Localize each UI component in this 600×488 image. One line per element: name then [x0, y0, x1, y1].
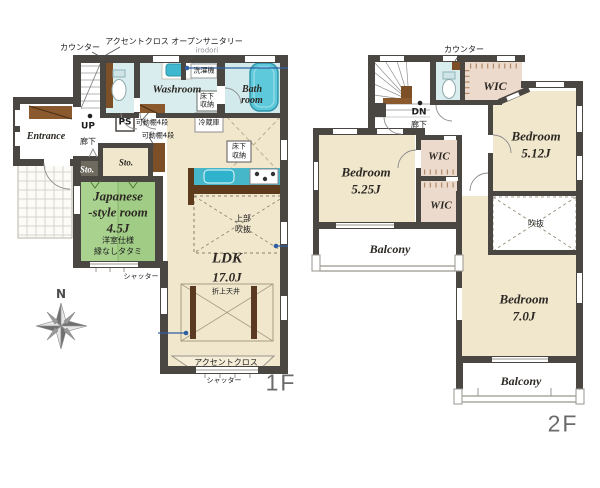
sto-large-label: Sto.	[119, 159, 133, 168]
washing-machine-label: 洗濯機	[194, 68, 215, 75]
ldk-label-2: 17.0J	[212, 271, 241, 284]
sto-small-label: Sto.	[80, 166, 94, 175]
wic-low-label: WIC	[430, 201, 451, 212]
underfloor-kitchen-1: 床下	[232, 144, 246, 151]
floor1-label: 1F	[266, 372, 297, 395]
floorplan-canvas: カウンター アクセントクロス オープンサニタリー irodori 洗濯機 床下 …	[0, 0, 600, 488]
balcony-south-label: Balcony	[501, 375, 542, 387]
bedroom-70-label-1: Bedroom	[499, 293, 548, 306]
shutter-label-south: シャッター	[124, 274, 159, 281]
corridor-label-2f: 廊下	[411, 121, 427, 129]
shelf-label-1: 可動棚4段	[136, 120, 168, 127]
accent-cloth-bottom-label: アクセントクロス	[194, 359, 258, 367]
bedroom-512-label-2: 5.12J	[521, 147, 550, 160]
corridor-label-1f: 廊下	[80, 138, 96, 146]
ldk-label-1: LDK	[212, 252, 242, 267]
bathroom-label-2: room	[241, 96, 263, 106]
floor2-label: 2F	[548, 413, 579, 436]
floorplan-drawing	[0, 0, 600, 488]
refrigerator-label: 冷蔵庫	[199, 120, 220, 127]
counter-label-2f: カウンター	[444, 46, 484, 54]
bathroom-label-1: Bath	[242, 85, 262, 95]
bedroom-525-label-2: 5.25J	[351, 183, 380, 196]
japanese-room-label-2: -style room	[88, 206, 148, 219]
ps-label: PS	[118, 119, 131, 128]
shelf-label-2: 可動棚4段	[142, 133, 174, 140]
bedroom-70-label-2: 7.0J	[513, 310, 536, 323]
underfloor-wash-label-1: 床下	[200, 94, 214, 101]
underfloor-wash-label-2: 収納	[200, 102, 214, 109]
porch-tiles	[18, 163, 72, 238]
japanese-room-label-3: 4.5J	[107, 222, 130, 235]
coffered-ceiling-label: 折上天井	[212, 289, 240, 296]
accent-cloth-top-label: アクセントクロス	[105, 38, 169, 46]
compass-rose-icon	[36, 303, 87, 349]
underfloor-kitchen-2: 収納	[232, 153, 246, 160]
open-sanitary-name: irodori	[196, 48, 219, 55]
japanese-room-label-1: Japanese	[93, 190, 143, 203]
upper-void-label-1: 上部	[235, 215, 251, 223]
japanese-room-note-1: 洋室仕様	[102, 237, 134, 245]
wic-top-label: WIC	[483, 80, 506, 92]
wic-mid-label: WIC	[428, 152, 449, 163]
dn-label: DN	[411, 109, 426, 118]
shutter-label-ldk: シャッター	[207, 378, 242, 385]
japanese-room-note-2: 縁なしタタミ	[94, 248, 142, 256]
bedroom-525-label-1: Bedroom	[341, 166, 390, 179]
washroom-label: Washroom	[153, 85, 202, 96]
counter-label-1f: カウンター	[60, 44, 100, 52]
up-label: UP	[81, 123, 95, 132]
bedroom-512-label-1: Bedroom	[511, 130, 560, 143]
upper-void-label-2: 吹抜	[235, 226, 251, 234]
open-sanitary-label: オープンサニタリー	[171, 38, 243, 46]
entrance-label: Entrance	[27, 132, 65, 142]
compass-north-label: N	[56, 288, 66, 300]
balcony-west-label: Balcony	[370, 243, 411, 255]
void-label: 吹抜	[528, 220, 544, 228]
